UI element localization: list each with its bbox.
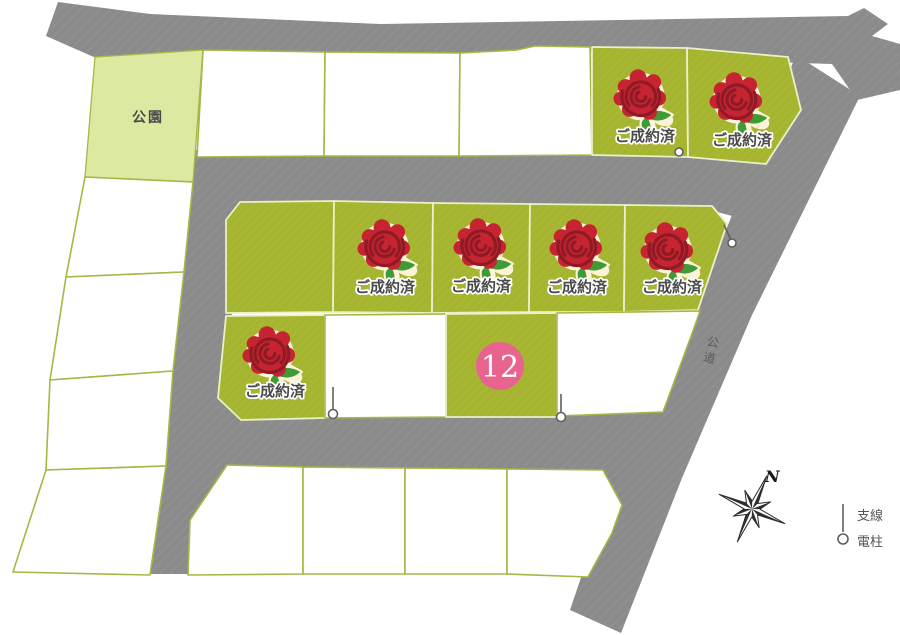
sold-stamp-label: ご成約済 xyxy=(245,382,306,400)
sold-stamp-label: ご成約済 xyxy=(451,277,512,295)
lot-left-3 xyxy=(46,371,173,470)
sold-stamp-label: ご成約済 xyxy=(547,278,608,296)
subdivision-map: 公園 公道 ご成約済 ご成約済 ご成約済 ご成約済 ご成約済 ご成約済 xyxy=(0,0,900,635)
sold-stamp-label: ご成約済 xyxy=(355,278,416,296)
sold-stamp-label: ご成約済 xyxy=(615,127,676,145)
utility-pole-icon xyxy=(838,534,848,544)
legend-support-line-label: 支線 xyxy=(857,508,883,524)
utility-pole-icon xyxy=(557,413,566,422)
site-plan-canvas: 公園 公道 ご成約済 ご成約済 ご成約済 ご成約済 ご成約済 ご成約済 xyxy=(0,0,900,635)
lot-bottom-3 xyxy=(405,468,507,574)
lot-top-2 xyxy=(324,52,460,156)
utility-pole-icon xyxy=(329,410,338,419)
park-label: 公園 xyxy=(132,110,164,126)
lot-bottom-2 xyxy=(303,467,405,574)
lot-left-2 xyxy=(50,272,184,380)
lot-12-badge: 12 xyxy=(476,342,524,390)
sold-stamp-label: ご成約済 xyxy=(642,278,703,296)
lot-left-1 xyxy=(66,177,193,277)
sold-stamp-label: ご成約済 xyxy=(712,131,773,149)
lot-top-3 xyxy=(459,46,592,156)
north-label: N xyxy=(764,467,781,486)
lot-lower-white-1 xyxy=(325,314,446,418)
lot-number: 12 xyxy=(481,350,519,385)
lot-top-1 xyxy=(197,50,325,157)
legend-utility-pole-label: 電柱 xyxy=(857,535,883,550)
utility-pole-icon xyxy=(675,148,683,156)
lot-mid-green xyxy=(226,201,334,313)
utility-pole-icon xyxy=(728,239,736,247)
